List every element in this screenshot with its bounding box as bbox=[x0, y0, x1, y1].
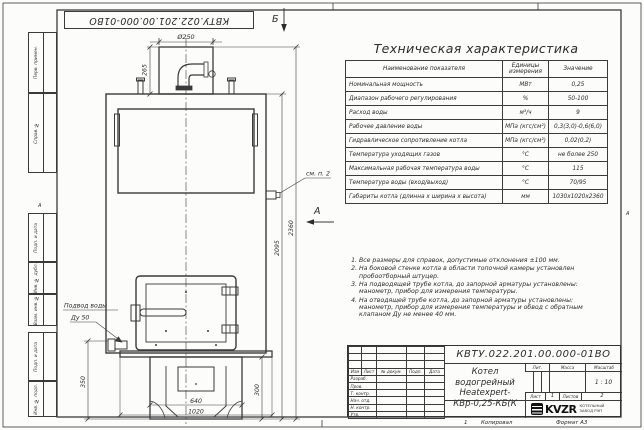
sign-label-nachotd: Нач. отд. bbox=[349, 397, 377, 404]
kvzr-logo-icon bbox=[531, 403, 543, 415]
company-cell: KVZR КОТЕЛЬНЫЙ ЗАВОД РЭП bbox=[525, 400, 622, 418]
stamp-text: Перв. примен. bbox=[34, 46, 39, 79]
kvzr-sub-line2: ЗАВОД РЭП bbox=[579, 409, 604, 414]
sign-label-razrab: Разраб. bbox=[349, 375, 377, 382]
spec-cell: не более 250 bbox=[549, 148, 608, 162]
dim-body-height: 2095 bbox=[274, 240, 281, 256]
stamp-text: Инв. № дубл. bbox=[34, 263, 39, 293]
view-a-label: А bbox=[313, 206, 321, 217]
divider bbox=[533, 372, 534, 392]
spec-cell: 0,02(0,2) bbox=[549, 134, 608, 148]
spec-cell: МПа (кгс/см²) bbox=[503, 134, 549, 148]
spec-cell: Номинальная мощность bbox=[346, 78, 503, 92]
view-b-label: Б bbox=[272, 14, 279, 25]
spec-row: Номинальная мощностьМВт0,25 bbox=[346, 78, 608, 92]
note-item: На подводящей трубе котла, до запорной а… bbox=[359, 281, 600, 296]
spec-row: Температура уходящих газов°Сне более 250 bbox=[346, 148, 608, 162]
divider bbox=[549, 372, 550, 392]
spec-cell: МПа (кгс/см²) bbox=[503, 120, 549, 134]
dim-total-height: 2360 bbox=[288, 220, 295, 236]
footer-copied-label: Копировал bbox=[481, 420, 512, 426]
stamp-podp-data-2: Подп. и дата bbox=[28, 332, 57, 381]
spec-cell: Максимальная рабочая температура воды bbox=[346, 162, 503, 176]
stamp-label: Справ. № bbox=[29, 94, 44, 172]
spec-row: Температура воды (вход/выход)°С70/95 bbox=[346, 176, 608, 190]
spec-header-name: Наименование показателя bbox=[346, 61, 503, 78]
stamp-text: Справ. № bbox=[34, 122, 39, 144]
stamp-vzam-inv: Взам. инв. № bbox=[28, 294, 57, 326]
zone-letter-right: А bbox=[626, 211, 629, 217]
spec-cell: мм bbox=[503, 190, 549, 204]
dim-base-width: 640 bbox=[190, 398, 202, 405]
spec-cell: Рабочее давление воды bbox=[346, 120, 503, 134]
stamp-podp-data-1: Подп. и дата bbox=[28, 213, 57, 262]
spec-cell: °С bbox=[503, 176, 549, 190]
spec-cell: 0,25 bbox=[549, 78, 608, 92]
product-name-line1: Котел водогрейный bbox=[445, 367, 525, 388]
dim-chimney-height: 265 bbox=[142, 64, 149, 76]
revision-header-row: Изм Лист № докум. Подп. Дата bbox=[349, 368, 445, 375]
spec-table: Наименование показателя Единицы измерени… bbox=[345, 60, 608, 204]
spec-cell: МВт bbox=[503, 78, 549, 92]
footer-zone-number: 1 bbox=[464, 420, 468, 426]
spec-table-title: Техническая характеристика bbox=[345, 41, 607, 56]
spec-cell: Температура уходящих газов bbox=[346, 148, 503, 162]
see-note-callout: см. п. 2 bbox=[306, 171, 330, 178]
spec-cell: Расход воды bbox=[346, 106, 503, 120]
stamp-label: Инв. № подл. bbox=[29, 382, 44, 416]
stamp-text: Взам. инв. № bbox=[34, 295, 39, 325]
spec-row: Габариты котла (длинна х ширина х высота… bbox=[346, 190, 608, 204]
spec-row: Расход водым³/ч9 bbox=[346, 106, 608, 120]
sign-label-prov: Пров. bbox=[349, 382, 377, 389]
spec-cell: °С bbox=[503, 148, 549, 162]
sign-label-utv: Утв. bbox=[349, 411, 377, 418]
lit-header: Лит. bbox=[525, 364, 549, 372]
spec-row: Гидравлическое сопротивление котлаМПа (к… bbox=[346, 134, 608, 148]
stamp-label: Подп. и дата bbox=[29, 214, 44, 261]
spec-cell: 70/95 bbox=[549, 176, 608, 190]
note-item: На боковой стенке котла в области топочн… bbox=[359, 265, 600, 280]
dim-base-height-left: 350 bbox=[80, 376, 87, 388]
rev-col-data: Дата bbox=[425, 368, 445, 375]
doc-number-flipped-box: КВТУ.022.201.00.000-01ВО bbox=[64, 11, 254, 29]
sign-label-tkontr: Т. контр. bbox=[349, 390, 377, 397]
scale-header: Масштаб bbox=[585, 364, 622, 372]
kvzr-logo-text: KVZR bbox=[545, 403, 576, 416]
spec-cell: °С bbox=[503, 162, 549, 176]
spec-header-row: Наименование показателя Единицы измерени… bbox=[346, 61, 608, 78]
sheet-number: 1 bbox=[545, 392, 559, 400]
spec-cell: Габариты котла (длинна х ширина х высота… bbox=[346, 190, 503, 204]
kvzr-logo-subtext: КОТЕЛЬНЫЙ ЗАВОД РЭП bbox=[579, 404, 604, 414]
scale-value: 1 : 10 bbox=[585, 372, 622, 392]
spec-cell: Диапазон рабочего регулирования bbox=[346, 92, 503, 106]
spec-cell: Температура воды (вход/выход) bbox=[346, 176, 503, 190]
rev-col-izm: Изм bbox=[349, 368, 362, 375]
water-inlet-label-2: Ду 50 bbox=[70, 315, 89, 322]
product-name-empty-cell bbox=[444, 400, 525, 418]
spec-cell: Гидравлическое сопротивление котла bbox=[346, 134, 503, 148]
stamp-label: Инв. № дубл. bbox=[29, 263, 44, 293]
spec-cell: 50-100 bbox=[549, 92, 608, 106]
sign-label-nkontr: Н. контр. bbox=[349, 404, 377, 411]
stamp-label: Взам. инв. № bbox=[29, 295, 44, 325]
footer-format-label: Формат А3 bbox=[556, 420, 587, 426]
spec-cell: м³/ч bbox=[503, 106, 549, 120]
rev-col-podp: Подп. bbox=[407, 368, 425, 375]
product-name-cell: Котел водогрейный Heatexpert-КВр-0,25-КБ… bbox=[444, 364, 525, 400]
stamp-perv-primen: Перв. примен. bbox=[28, 32, 57, 93]
stamp-sprav-no: Справ. № bbox=[28, 93, 57, 173]
spec-cell: % bbox=[503, 92, 549, 106]
stamp-inv-dubl: Инв. № дубл. bbox=[28, 262, 57, 294]
spec-cell: 115 bbox=[549, 162, 608, 176]
spec-cell: 1030х1020х2360 bbox=[549, 190, 608, 204]
stamp-inv-podl: Инв. № подл. bbox=[28, 381, 57, 417]
rev-col-list: Лист bbox=[362, 368, 377, 375]
spec-row: Максимальная рабочая температура воды°С1… bbox=[346, 162, 608, 176]
title-block: Изм Лист № докум. Подп. Дата Разраб. Про… bbox=[347, 345, 621, 417]
stamp-text: Подп. и дата bbox=[34, 223, 39, 253]
rev-col-docnum: № докум. bbox=[377, 368, 407, 375]
spec-row: Рабочее давление водыМПа (кгс/см²)0,3(3,… bbox=[346, 120, 608, 134]
zone-letter-left: А bbox=[38, 203, 41, 209]
sheets-total: 2 bbox=[581, 392, 622, 400]
revision-table: Изм Лист № докум. Подп. Дата Разраб. Про… bbox=[348, 346, 445, 419]
dim-chimney-diameter: Ø250 bbox=[176, 33, 194, 41]
stamp-label: Подп. и дата bbox=[29, 333, 44, 380]
stamp-text: Подп. и дата bbox=[34, 342, 39, 372]
spec-header-value: Значение bbox=[549, 61, 608, 78]
spec-cell: 0,3(3,0)-0,6(6,0) bbox=[549, 120, 608, 134]
spec-row: Диапазон рабочего регулирования%50-100 bbox=[346, 92, 608, 106]
water-inlet-label-1: Подвод воды bbox=[64, 303, 107, 310]
title-block-doc-number: КВТУ.022.201.00.000-01ВО bbox=[444, 346, 622, 364]
stamp-label: Перв. примен. bbox=[29, 33, 44, 92]
dim-base-height-right: 300 bbox=[254, 384, 261, 396]
divider bbox=[541, 372, 542, 392]
mass-header: Масса bbox=[549, 364, 585, 372]
spec-cell: 9 bbox=[549, 106, 608, 120]
sheet-label: Лист bbox=[525, 392, 545, 400]
sheets-label: Листов bbox=[559, 392, 581, 400]
spec-header-units: Единицы измерения bbox=[503, 61, 549, 78]
notes-block: Все размеры для справок, допустимые откл… bbox=[346, 257, 600, 320]
note-item: Все размеры для справок, допустимые откл… bbox=[359, 257, 600, 264]
drawing-sheet: Ø250 265 2095 2360 350 300 640 1020 Б А … bbox=[0, 0, 644, 430]
stamp-text: Инв. № подл. bbox=[34, 384, 39, 415]
doc-number-flipped: КВТУ.022.201.00.000-01ВО bbox=[89, 15, 229, 26]
dim-total-width: 1020 bbox=[188, 409, 204, 416]
note-item: На отводящей трубе котла, до запорной ар… bbox=[359, 297, 600, 319]
